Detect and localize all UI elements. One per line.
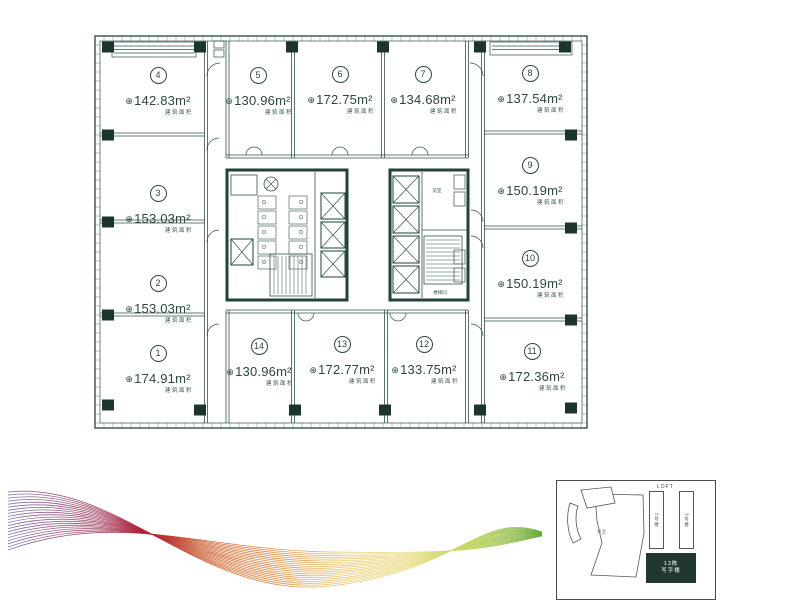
- column-icon: [565, 130, 577, 141]
- unit-label-4: 4 ⊕142.83m² 建筑面积: [103, 65, 213, 116]
- unit-label-10: 10 ⊕150.19m² 建筑面积: [475, 248, 585, 299]
- unit-area: 150.19m²: [506, 276, 563, 291]
- keyplan-podium-label: 商业: [597, 529, 606, 535]
- area-mark-icon: ⊕: [497, 94, 505, 104]
- column-icon: [379, 405, 391, 416]
- site-key-plan: LOFT 2号楼 3号楼 商业 13栋 写字楼: [556, 480, 716, 600]
- unit-number-badge: 12: [416, 336, 433, 353]
- door-swing-icon: [340, 147, 348, 155]
- door-swing-icon: [332, 147, 340, 155]
- unit-area-caption: 建筑面积: [204, 379, 314, 387]
- unit-label-14: 14 ⊕130.96m² 建筑面积: [204, 336, 314, 387]
- column-icon: [194, 405, 206, 416]
- door-swing-icon: [420, 147, 428, 155]
- column-icon: [559, 42, 571, 53]
- highlight-line2: 写字楼: [661, 568, 681, 575]
- area-mark-icon: ⊕: [497, 279, 505, 289]
- area-mark-icon: ⊕: [497, 186, 505, 196]
- ribbon-strand: [8, 525, 542, 561]
- column-icon: [565, 403, 577, 414]
- annex-outline: [568, 503, 581, 543]
- column-icon: [286, 42, 298, 53]
- unit-label-7: 7 ⊕134.68m² 建筑面积: [368, 64, 478, 115]
- unit-area: 172.36m²: [508, 369, 565, 384]
- door-swing-icon: [412, 147, 420, 155]
- unit-area-caption: 建筑面积: [475, 106, 585, 114]
- core-label-stairwell: 楼梯间: [433, 289, 447, 296]
- column-icon: [474, 405, 486, 416]
- ribbon-strand: [8, 517, 542, 568]
- door-swing-icon: [306, 313, 314, 321]
- tower-label: 3号楼: [684, 513, 690, 528]
- unit-area-caption: 建筑面积: [475, 291, 585, 299]
- unit-number-badge: 7: [415, 66, 432, 83]
- door-swing-icon: [246, 147, 254, 155]
- highlight-line1: 13栋: [664, 561, 679, 568]
- unit-number-badge: 10: [522, 250, 539, 267]
- unit-area-caption: 建筑面积: [368, 107, 478, 115]
- column-icon: [289, 405, 301, 416]
- unit-area: 134.68m²: [399, 92, 456, 107]
- unit-area: 130.96m²: [234, 93, 291, 108]
- column-icon: [377, 42, 389, 53]
- unit-number-badge: 11: [524, 343, 541, 360]
- unit-number-badge: 1: [150, 345, 167, 362]
- keyplan-tower-left: 2号楼: [649, 491, 664, 549]
- unit-area: 142.83m²: [134, 93, 191, 108]
- unit-area: 153.03m²: [134, 211, 191, 226]
- area-mark-icon: ⊕: [225, 96, 233, 106]
- unit-number-badge: 4: [150, 67, 167, 84]
- unit-area-caption: 建筑面积: [103, 316, 213, 324]
- unit-number-badge: 2: [150, 275, 167, 292]
- door-swing-icon: [398, 313, 406, 321]
- core-label-front-room: 前室: [433, 187, 442, 194]
- unit-area: 172.75m²: [316, 92, 373, 107]
- unit-area-caption: 建筑面积: [103, 108, 213, 116]
- unit-area-caption: 建筑面积: [477, 384, 587, 392]
- door-swing-icon: [207, 138, 219, 150]
- area-mark-icon: ⊕: [499, 372, 507, 382]
- ribbon-strand: [8, 530, 542, 556]
- tower-label: 2号楼: [654, 513, 660, 528]
- area-mark-icon: ⊕: [125, 304, 133, 314]
- unit-label-11: 11 ⊕172.36m² 建筑面积: [477, 341, 587, 392]
- ribbon-strand: [8, 531, 542, 554]
- column-icon: [565, 315, 577, 326]
- area-mark-icon: ⊕: [390, 95, 398, 105]
- ribbon-strand: [8, 512, 542, 572]
- ribbon-strand: [8, 519, 542, 566]
- keyplan-current-building-highlight: 13栋 写字楼: [646, 553, 696, 583]
- unit-area-caption: 建筑面积: [103, 386, 213, 394]
- unit-area: 133.75m²: [400, 362, 457, 377]
- column-icon: [102, 130, 114, 141]
- right-core: 前室 楼梯间: [390, 170, 468, 300]
- unit-area: 174.91m²: [134, 371, 191, 386]
- unit-label-9: 9 ⊕150.19m² 建筑面积: [475, 155, 585, 206]
- keyplan-loft-label: LOFT: [657, 484, 674, 490]
- ribbon-strand: [8, 502, 542, 579]
- unit-area: 130.96m²: [235, 364, 292, 379]
- column-icon: [565, 223, 577, 234]
- column-icon: [474, 42, 486, 53]
- unit-number-badge: 8: [522, 65, 539, 82]
- door-swing-icon: [390, 313, 398, 321]
- area-mark-icon: ⊕: [226, 367, 234, 377]
- door-swing-icon: [207, 324, 219, 336]
- unit-area: 150.19m²: [506, 183, 563, 198]
- left-core: [227, 170, 347, 300]
- unit-area: 172.77m²: [318, 362, 375, 377]
- area-mark-icon: ⊕: [125, 96, 133, 106]
- unit-area: 153.03m²: [134, 301, 191, 316]
- unit-number-badge: 3: [150, 185, 167, 202]
- column-icon: [102, 400, 114, 411]
- unit-label-3: 3 ⊕153.03m² 建筑面积: [103, 183, 213, 234]
- unit-number-badge: 9: [522, 157, 539, 174]
- area-mark-icon: ⊕: [125, 214, 133, 224]
- unit-area: 137.54m²: [506, 91, 563, 106]
- area-mark-icon: ⊕: [307, 95, 315, 105]
- unit-number-badge: 14: [251, 338, 268, 355]
- unit-label-8: 8 ⊕137.54m² 建筑面积: [475, 63, 585, 114]
- unit-number-badge: 6: [332, 66, 349, 83]
- unit-area-caption: 建筑面积: [475, 198, 585, 206]
- unit-number-badge: 5: [250, 67, 267, 84]
- ribbon-strand: [8, 505, 542, 578]
- page: 前室 楼梯间 1 ⊕174.91m² 建筑面积 2 ⊕153.03m² 建筑面积…: [0, 0, 806, 607]
- area-mark-icon: ⊕: [125, 374, 133, 384]
- column-icon: [194, 42, 206, 53]
- podium-outline: [591, 494, 644, 577]
- unit-label-2: 2 ⊕153.03m² 建筑面积: [103, 273, 213, 324]
- ribbon-strand: [8, 523, 542, 563]
- door-swing-icon: [254, 147, 262, 155]
- unit-area-caption: 建筑面积: [103, 226, 213, 234]
- door-swing-icon: [298, 313, 306, 321]
- unit-label-1: 1 ⊕174.91m² 建筑面积: [103, 343, 213, 394]
- keyplan-tower-right: 3号楼: [679, 491, 694, 549]
- unit-number-badge: 13: [334, 336, 351, 353]
- column-icon: [102, 42, 114, 53]
